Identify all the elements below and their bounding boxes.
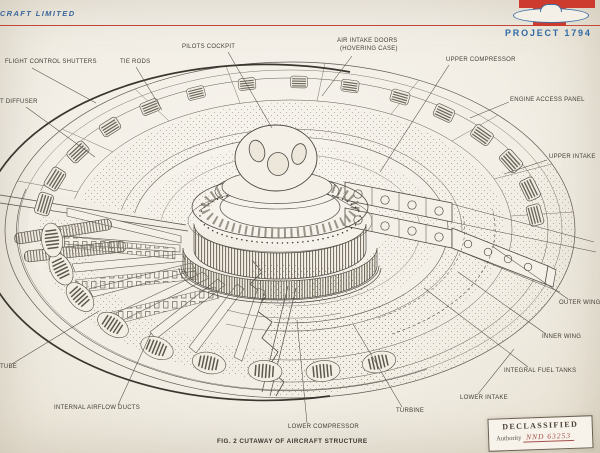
header-rule [0,25,600,26]
porthole-center [268,153,289,176]
declassified-stamp: DECLASSIFIED Authority NND 63253 [487,415,593,452]
label-internal-airflow-ducts: INTERNAL AIRFLOW DUCTS [54,405,140,412]
label-tube-partial: TUBE [0,364,17,371]
label-outer-wing: OUTER WING [559,300,600,307]
scanned-document-page: RCRAFT LIMITED PROJECT 1794 FLIGHT CONTR… [0,0,600,453]
label-engine-access-panel: ENGINE ACCESS PANEL [510,97,585,104]
avro-logo [519,0,595,27]
label-pilots-cockpit: PILOTS COCKPIT [182,44,235,51]
stamp-authority-line: Authority NND 63253 [496,430,592,442]
stamp-authority-label: Authority [496,435,522,443]
label-lower-intake: LOWER INTAKE [460,395,508,402]
label-upper-compressor: UPPER COMPRESSOR [446,57,516,64]
stamp-authority-number: NND 63253 [523,431,574,443]
company-name: RCRAFT LIMITED [0,9,76,18]
label-turbine: TURBINE [396,408,424,415]
project-title: PROJECT 1794 [505,28,592,38]
label-upper-intake: UPPER INTAKE [549,154,596,161]
logo-saucer-dome-icon [540,4,562,12]
label-flight-control-shutters: FLIGHT CONTROL SHUTTERS [5,59,97,66]
label-tie-rods: TIE RODS [120,59,150,66]
aircraft-cutaway-drawing [0,0,600,453]
label-inner-wing: INNER WING [542,334,581,341]
label-hovering-case: (HOVERING CASE) [340,46,398,53]
label-integral-fuel-tanks: INTEGRAL FUEL TANKS [504,368,576,375]
figure-caption: FIG. 2 CUTAWAY OF AIRCRAFT STRUCTURE [217,438,368,445]
label-lower-compressor: LOWER COMPRESSOR [288,424,359,431]
label-diffuser-partial: T DIFFUSER [0,99,38,106]
label-air-intake-doors: AIR INTAKE DOORS [337,38,398,45]
